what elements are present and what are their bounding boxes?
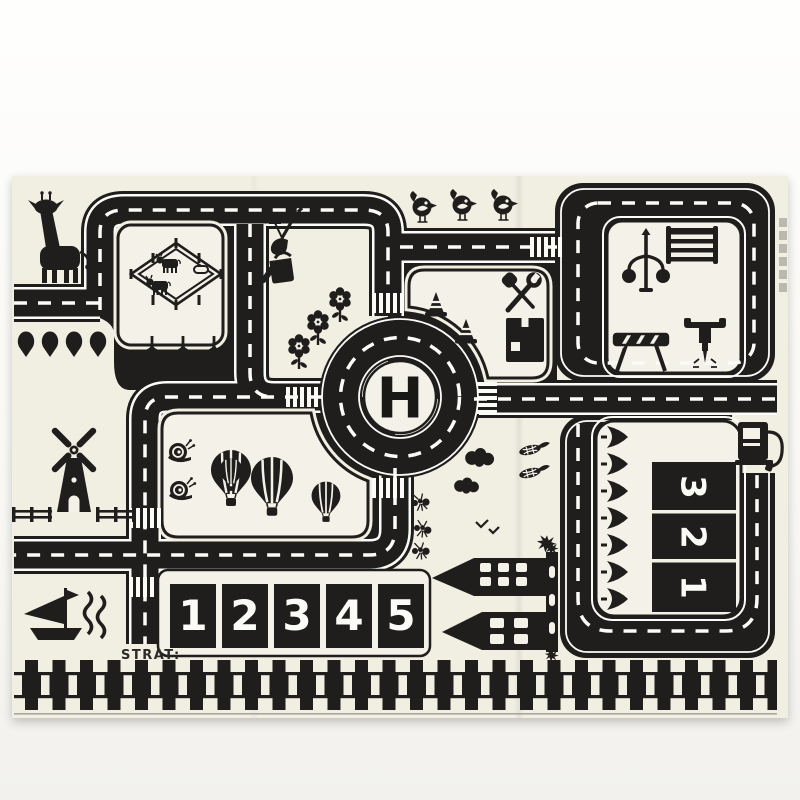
- side-parking: 3 2 1: [652, 462, 736, 612]
- paddock-gate: [194, 266, 208, 273]
- parking-number: 2: [230, 591, 259, 640]
- start-label: STRAT:: [121, 648, 181, 663]
- parking-number: 1: [178, 591, 207, 640]
- product-photo: H 1 2 3 4 5 3 2 1: [0, 0, 800, 800]
- play-mat: H 1 2 3 4 5 3 2 1: [0, 0, 800, 800]
- parking-number: 1: [672, 575, 712, 599]
- parking-number: 2: [672, 525, 712, 549]
- parking-row: 1 2 3 4 5: [158, 570, 430, 656]
- helipad-label: H: [377, 367, 424, 432]
- parking-number: 3: [672, 475, 712, 499]
- parking-number: 3: [282, 591, 311, 640]
- parking-number: 5: [386, 591, 415, 640]
- helipad: H: [364, 361, 436, 433]
- toolbox-icon: [506, 316, 544, 362]
- railroad-track: [14, 660, 777, 715]
- parking-number: 4: [334, 591, 363, 640]
